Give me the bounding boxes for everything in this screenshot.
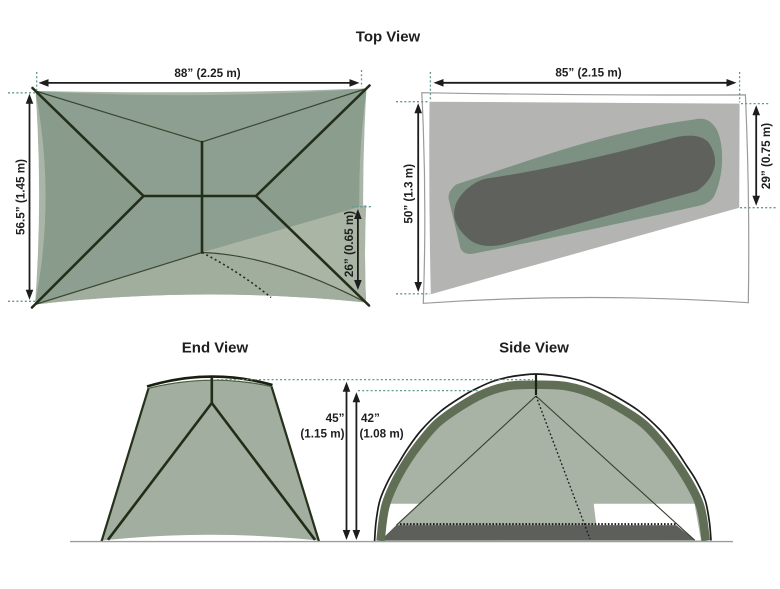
svg-text:85” (2.15 m): 85” (2.15 m) [555, 66, 621, 79]
svg-text:29” (0.75 m): 29” (0.75 m) [760, 123, 773, 189]
svg-text:45”: 45” [326, 412, 345, 425]
svg-text:(1.08 m): (1.08 m) [360, 427, 404, 440]
svg-text:26” (0.65 m): 26” (0.65 m) [343, 211, 356, 277]
svg-text:(1.15 m): (1.15 m) [300, 427, 344, 440]
svg-text:50” (1.3 m): 50” (1.3 m) [402, 164, 415, 224]
svg-text:56.5” (1.45 m): 56.5” (1.45 m) [14, 159, 27, 235]
svg-text:End View: End View [182, 339, 249, 356]
svg-text:Top View: Top View [356, 28, 421, 45]
svg-text:Side View: Side View [499, 339, 569, 356]
svg-text:88” (2.25 m): 88” (2.25 m) [174, 67, 240, 80]
svg-text:42”: 42” [361, 412, 380, 425]
